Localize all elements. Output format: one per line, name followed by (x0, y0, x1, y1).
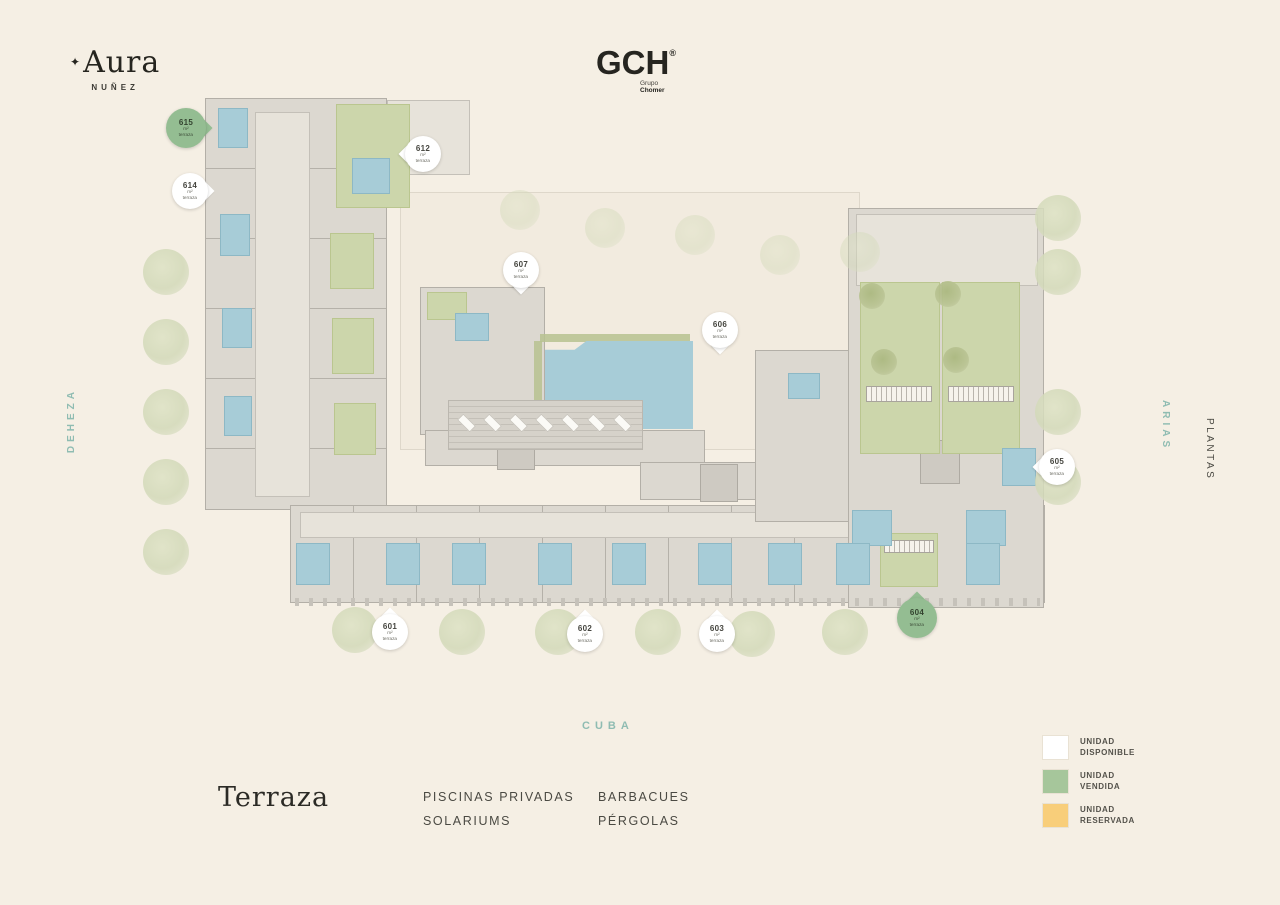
pool-shrubs (534, 341, 542, 407)
pergola-west (866, 386, 932, 402)
private-pool (768, 543, 802, 585)
private-pool (698, 543, 732, 585)
right-wing-top-interior (856, 214, 1038, 286)
private-pool (455, 313, 489, 341)
unit-pin-601[interactable]: 601m²terraza (372, 614, 408, 650)
private-pool (352, 158, 390, 194)
unit-pin-605[interactable]: 605m²terraza (1039, 449, 1075, 485)
tree-icon (500, 190, 540, 230)
unit-pin-612[interactable]: 612m²terraza (405, 136, 441, 172)
private-pool (452, 543, 486, 585)
left-wing-interior (255, 112, 310, 497)
tree-icon (143, 389, 189, 435)
private-pool (538, 543, 572, 585)
tree-icon (822, 609, 868, 655)
private-pool (966, 510, 1006, 546)
pool-shrubs (540, 334, 690, 342)
private-pool (788, 373, 820, 399)
tree-icon (859, 283, 885, 309)
private-pool (218, 108, 248, 148)
tree-icon (840, 232, 880, 272)
private-pool (1002, 448, 1036, 486)
stair-core-center (700, 464, 738, 502)
private-pool (612, 543, 646, 585)
tree-icon (675, 215, 715, 255)
tree-icon (143, 319, 189, 365)
terrace-garden-west-1 (330, 233, 374, 289)
terrace-garden-west-3 (334, 403, 376, 455)
private-pool (386, 543, 420, 585)
tree-icon (760, 235, 800, 275)
terrace-garden-west-2 (332, 318, 374, 374)
tree-icon (143, 529, 189, 575)
private-pool (224, 396, 252, 436)
tree-icon (1035, 249, 1081, 295)
unit-pin-607[interactable]: 607m²terraza (503, 252, 539, 288)
tree-icon (439, 609, 485, 655)
tree-icon (935, 281, 961, 307)
unit-pin-604[interactable]: 604m²terraza (897, 598, 937, 638)
tree-icon (1035, 389, 1081, 435)
private-pool (220, 214, 250, 256)
unit-pin-606[interactable]: 606m²terraza (702, 312, 738, 348)
tree-icon (871, 349, 897, 375)
tree-icon (729, 611, 775, 657)
private-pool (852, 510, 892, 546)
tree-icon (585, 208, 625, 248)
tree-icon (1035, 195, 1081, 241)
tree-icon (635, 609, 681, 655)
unit-pin-614[interactable]: 614m²terraza (172, 173, 208, 209)
unit-pin-603[interactable]: 603m²terraza (699, 616, 735, 652)
tree-icon (943, 347, 969, 373)
tree-icon (143, 459, 189, 505)
pergola-east (948, 386, 1014, 402)
tree-icon (143, 249, 189, 295)
private-pool (966, 543, 1000, 585)
unit-pin-602[interactable]: 602m²terraza (567, 616, 603, 652)
private-pool (836, 543, 870, 585)
private-pool (222, 308, 252, 348)
private-pool (296, 543, 330, 585)
unit-pin-615[interactable]: 615m²terraza (166, 108, 206, 148)
